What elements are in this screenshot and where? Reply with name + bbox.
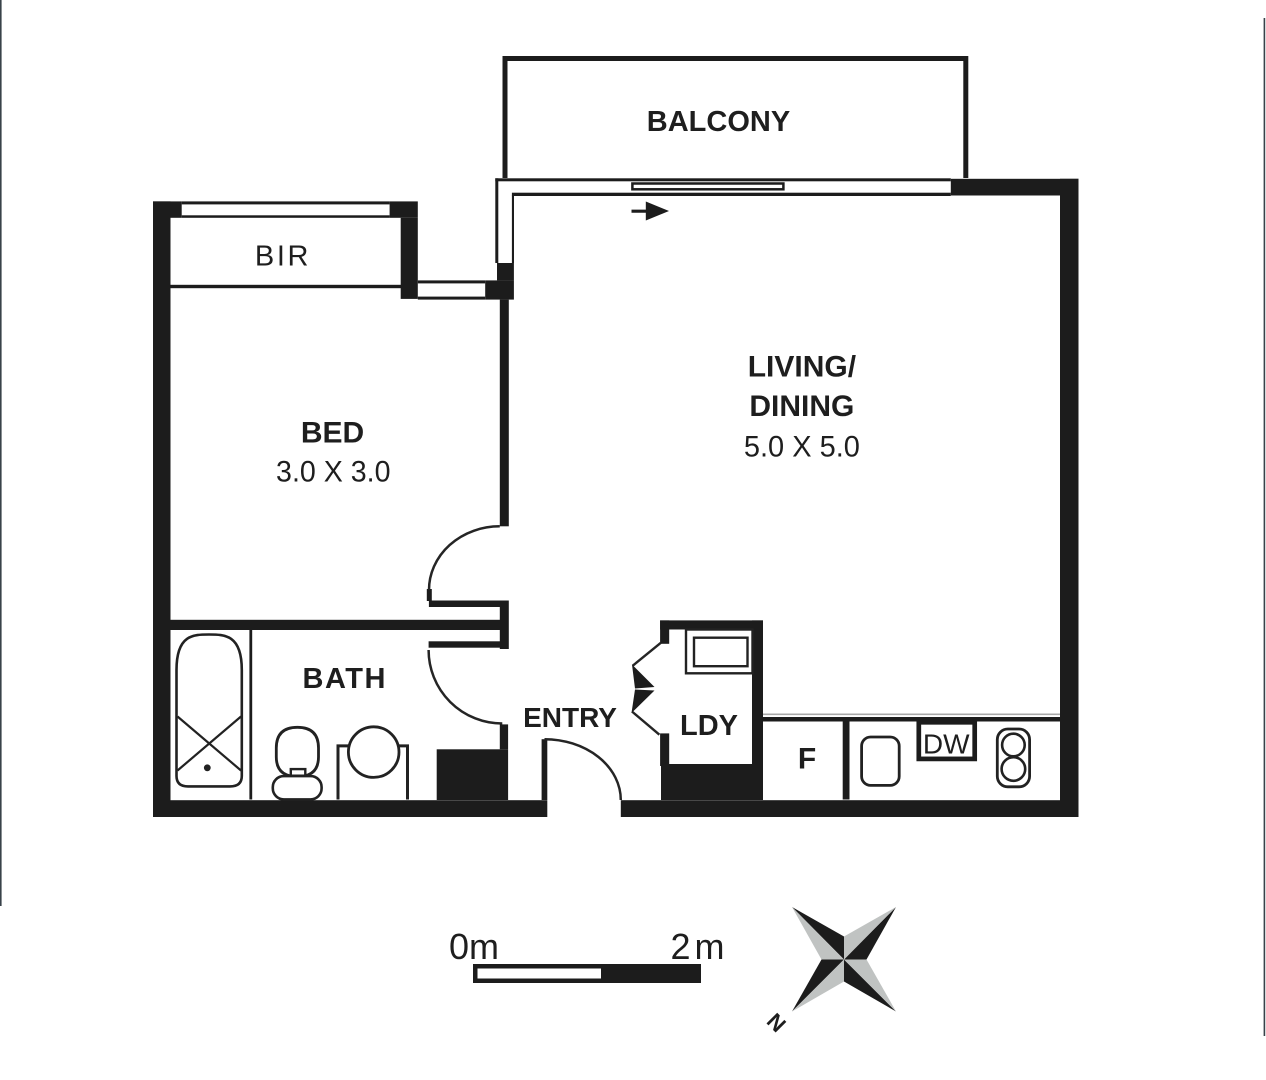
svg-text:ENTRY: ENTRY <box>523 702 617 733</box>
svg-text:DINING: DINING <box>749 390 854 423</box>
svg-text:0m: 0m <box>449 926 499 967</box>
svg-text:5.0 X 5.0: 5.0 X 5.0 <box>744 431 860 464</box>
svg-text:BALCONY: BALCONY <box>647 106 790 138</box>
svg-text:DW: DW <box>923 729 970 760</box>
svg-text:BED: BED <box>301 417 364 450</box>
svg-text:BIR: BIR <box>255 241 311 273</box>
svg-text:LDY: LDY <box>680 710 738 742</box>
svg-text:BATH: BATH <box>303 663 387 695</box>
svg-text:3.0 X 3.0: 3.0 X 3.0 <box>276 456 391 489</box>
svg-text:2m: 2m <box>671 926 729 967</box>
svg-text:LIVING/: LIVING/ <box>748 351 857 384</box>
svg-text:F: F <box>798 743 816 776</box>
